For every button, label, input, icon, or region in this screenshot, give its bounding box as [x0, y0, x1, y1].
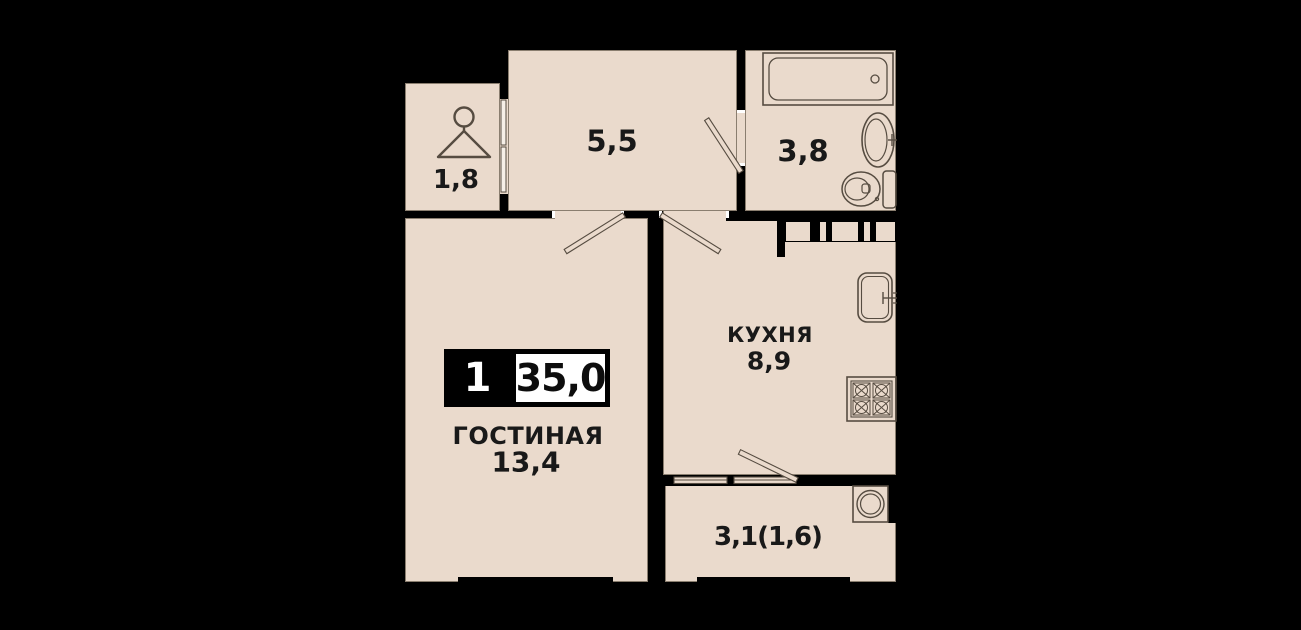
- wall: [726, 211, 905, 221]
- door-jamb: [737, 110, 745, 113]
- vent-cell: [786, 222, 810, 241]
- label-kitchen-name: КУХНЯ: [727, 323, 813, 347]
- label-kitchen-area: 8,9: [747, 347, 791, 376]
- window-notch: [458, 577, 613, 583]
- badge-rooms-count-value: 1: [464, 355, 492, 401]
- wall: [405, 211, 553, 218]
- door-jamb: [737, 163, 745, 166]
- door-jamb: [552, 211, 555, 218]
- wall: [648, 475, 905, 486]
- wall: [648, 211, 663, 582]
- door-opening-bathroom: [737, 113, 745, 163]
- vent-cell: [832, 222, 858, 241]
- badge-total-area: 35,0: [511, 349, 610, 407]
- vent-cell: [820, 222, 826, 241]
- door-jamb: [659, 211, 662, 218]
- label-hallway-area: 5,5: [586, 124, 637, 158]
- label-living-area: 13,4: [491, 446, 560, 479]
- vent-cell: [864, 222, 870, 241]
- wall: [737, 166, 745, 211]
- room-bathroom: [745, 50, 896, 211]
- badge-total-area-value: 35,0: [516, 356, 606, 400]
- door-opening-closet: [500, 99, 508, 194]
- vent-shaft: [785, 221, 896, 242]
- door-jamb: [726, 211, 729, 218]
- wall: [888, 486, 897, 523]
- badge-rooms-count: 1: [444, 349, 511, 407]
- window-notch: [697, 577, 850, 583]
- label-balcony-area: 3,1(1,6): [714, 522, 822, 552]
- door-jamb: [621, 211, 624, 218]
- door-opening-living: [555, 211, 621, 219]
- wall: [500, 83, 508, 99]
- floor-plan: 1 35,0 1,8 5,5 3,8 ГОСТИНАЯ 13,4 КУХНЯ 8…: [0, 0, 1301, 630]
- wall: [777, 221, 785, 257]
- wall: [500, 194, 508, 211]
- label-closet-area: 1,8: [433, 165, 479, 195]
- label-bathroom-area: 3,8: [777, 134, 828, 168]
- vent-cell: [876, 222, 895, 241]
- wall: [737, 50, 745, 110]
